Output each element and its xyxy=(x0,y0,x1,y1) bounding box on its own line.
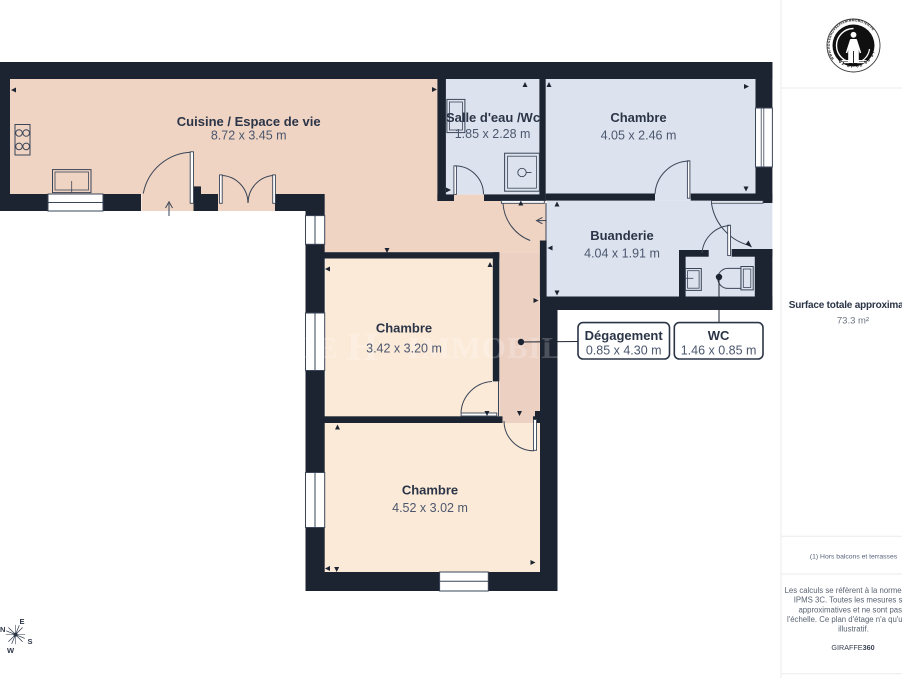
svg-text:N: N xyxy=(0,625,5,634)
svg-text:S: S xyxy=(28,637,33,646)
svg-text:LE: LE xyxy=(295,330,338,365)
svg-text:Chambre: Chambre xyxy=(376,321,432,336)
svg-text:Cuisine / Espace de vie: Cuisine / Espace de vie xyxy=(177,114,321,129)
svg-text:GIRAFFE360: GIRAFFE360 xyxy=(831,643,874,652)
svg-text:Chambre: Chambre xyxy=(610,110,666,125)
svg-text:Dégagement: Dégagement xyxy=(585,328,664,343)
svg-text:Salle d'eau /Wc: Salle d'eau /Wc xyxy=(446,110,540,125)
svg-text:8.72 x 3.45 m: 8.72 x 3.45 m xyxy=(211,129,287,143)
svg-text:W: W xyxy=(7,646,15,655)
svg-text:WC: WC xyxy=(708,328,730,343)
svg-text:(1) Hors balcons et terrasses: (1) Hors balcons et terrasses xyxy=(810,554,898,561)
svg-text:0.85 x 4.30 m: 0.85 x 4.30 m xyxy=(586,344,662,358)
svg-text:Les calculs se réfèrent à la n: Les calculs se réfèrent à la norme RICS xyxy=(785,586,902,595)
svg-text:Chambre: Chambre xyxy=(402,483,458,498)
svg-text:Buanderie: Buanderie xyxy=(590,228,654,243)
svg-text:Surface totale approximative: Surface totale approximative xyxy=(789,300,902,311)
svg-text:approximatives et ne sont pas: approximatives et ne sont pas à xyxy=(798,605,902,614)
svg-text:4.05 x 2.46 m: 4.05 x 2.46 m xyxy=(601,129,677,143)
svg-text:4.04 x 1.91 m: 4.04 x 1.91 m xyxy=(584,247,660,261)
svg-text:73.3 m²: 73.3 m² xyxy=(837,316,869,327)
svg-text:l'échelle. Ce plan d'étage n'a: l'échelle. Ce plan d'étage n'a qu'un but xyxy=(787,615,902,624)
svg-text:1.46 x 0.85 m: 1.46 x 0.85 m xyxy=(681,344,757,358)
svg-text:1.85 x 2.28 m: 1.85 x 2.28 m xyxy=(455,127,531,141)
svg-text:4.52 x 3.02 m: 4.52 x 3.02 m xyxy=(392,501,468,515)
svg-text:IPMS 3C. Toutes les mesures so: IPMS 3C. Toutes les mesures sont xyxy=(794,596,902,605)
svg-text:illustratif.: illustratif. xyxy=(838,625,869,634)
svg-text:3.42 x 3.20 m: 3.42 x 3.20 m xyxy=(366,342,442,356)
svg-text:E: E xyxy=(20,617,25,626)
